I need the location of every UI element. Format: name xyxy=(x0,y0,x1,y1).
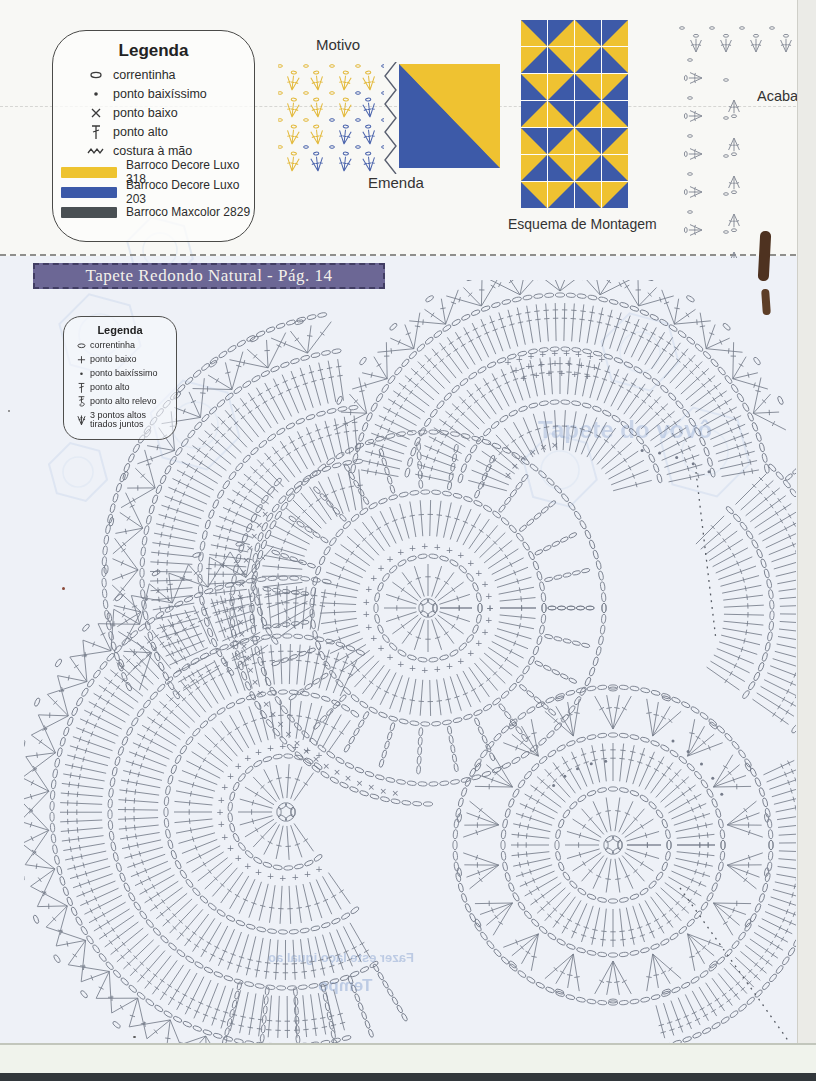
esquema-cell xyxy=(602,182,628,208)
esquema-cell xyxy=(548,74,574,100)
svg-text:+: + xyxy=(481,579,489,589)
esquema-cell xyxy=(548,128,574,154)
symbol-cell xyxy=(72,382,90,394)
symbol-cell xyxy=(79,86,113,102)
esquema-cell xyxy=(575,20,601,46)
legend-item-label: costura à mão xyxy=(113,144,192,158)
slip-stitch-icon xyxy=(87,86,105,102)
svg-text:×: × xyxy=(261,509,269,519)
svg-text:+: + xyxy=(525,361,533,371)
svg-text:+: + xyxy=(575,349,583,359)
esquema-cell xyxy=(575,155,601,181)
svg-text:+: + xyxy=(409,543,417,553)
legend-item: ponto alto relevo xyxy=(72,395,176,408)
legend-item-label: ponto alto relevo xyxy=(90,397,157,407)
yarn-swatch xyxy=(61,207,117,218)
dust-speck xyxy=(133,1036,136,1038)
svg-text:+: + xyxy=(421,541,429,551)
esquema-cell xyxy=(575,74,601,100)
svg-text:+: + xyxy=(216,807,224,817)
emenda-label: Emenda xyxy=(368,174,424,191)
rug-motif-bottom-right xyxy=(453,685,816,1049)
esquema-cell xyxy=(548,155,574,181)
symbol-cell xyxy=(72,340,90,352)
svg-text:+: + xyxy=(386,652,394,662)
svg-text:×: × xyxy=(379,786,387,796)
symbol-cell xyxy=(72,414,90,426)
legend-item-label: ponto baixo xyxy=(90,355,137,365)
esquema-cell xyxy=(548,20,574,46)
svg-text:+: + xyxy=(571,369,579,379)
svg-text:+: + xyxy=(475,638,483,648)
svg-text:+: + xyxy=(527,351,535,361)
svg-text:+: + xyxy=(227,843,235,853)
svg-text:×: × xyxy=(277,719,285,729)
esquema-cell xyxy=(602,101,628,127)
svg-text:×: × xyxy=(263,699,271,709)
svg-text:+: + xyxy=(386,554,394,564)
svg-text:+: + xyxy=(315,864,323,874)
esquema-cell xyxy=(575,128,601,154)
motivo-label: Motivo xyxy=(316,36,360,53)
esquema-cell xyxy=(575,47,601,73)
legend-item-label: correntinha xyxy=(113,68,176,82)
svg-text:+: + xyxy=(591,362,599,372)
yarn-label: Barroco Maxcolor 2829 xyxy=(126,205,250,219)
svg-text:+: + xyxy=(244,861,252,871)
legend-item-label: ponto baixíssimo xyxy=(113,87,207,101)
double-crochet-relief-icon xyxy=(75,396,88,408)
legend-item: 3 pontos altos tirados juntos xyxy=(72,409,176,431)
esquema-cell xyxy=(602,128,628,154)
legend-box-diagram: Legenda correntinhaponto baixoponto baix… xyxy=(63,316,177,440)
legend-item: ponto baixíssimo xyxy=(72,367,176,380)
rug-motif-bottom-left: +++++++++++++++++++++++ xyxy=(12,541,408,1071)
esquema-cell xyxy=(521,47,547,73)
symbol-cell xyxy=(79,124,113,140)
legend-item-label: ponto baixíssimo xyxy=(90,369,158,379)
symbol-cell xyxy=(72,368,90,380)
svg-text:+: + xyxy=(467,558,475,568)
symbol-cell xyxy=(72,354,90,366)
svg-text:+: + xyxy=(481,627,489,637)
svg-text:+: + xyxy=(397,659,405,669)
svg-text:+: + xyxy=(221,832,229,842)
svg-text:+: + xyxy=(520,373,528,383)
slip-stitch-icon xyxy=(75,368,88,380)
chain-icon xyxy=(87,67,105,83)
motivo-color-square xyxy=(399,64,500,168)
svg-text:+: + xyxy=(397,547,405,557)
svg-text:+: + xyxy=(292,872,300,882)
esquema-de-montagem-grid xyxy=(521,20,628,208)
legend-item: costura à mão xyxy=(79,143,254,159)
yarn-item: Barroco Decore Luxo 318 xyxy=(61,165,254,179)
svg-text:+: + xyxy=(434,664,442,674)
svg-text:+: + xyxy=(370,633,378,643)
svg-text:×: × xyxy=(344,773,352,783)
svg-text:+: + xyxy=(539,349,547,359)
svg-text:+: + xyxy=(545,368,553,378)
svg-text:+: + xyxy=(504,357,512,367)
symbol-cell xyxy=(79,67,113,83)
esquema-cell xyxy=(521,20,547,46)
legend-item-label: ponto alto xyxy=(113,125,168,139)
yarn-swatch xyxy=(61,167,117,178)
legend-symbol-list: correntinhaponto baixoponto baixíssimopo… xyxy=(64,339,176,431)
chain-icon xyxy=(75,340,88,352)
svg-text:+: + xyxy=(365,584,373,594)
banner-title: Tapete Redondo Natural - Pág. 14 xyxy=(85,266,332,286)
legend-item-label: ponto alto xyxy=(90,383,130,393)
svg-text:×: × xyxy=(333,767,341,777)
svg-text:+: + xyxy=(234,761,242,771)
svg-text:×: × xyxy=(285,729,293,739)
legend-item-label: ponto baixo xyxy=(113,106,178,120)
emenda-seam-zigzag xyxy=(381,62,401,174)
svg-text:+: + xyxy=(446,545,454,555)
svg-text:×: × xyxy=(551,440,559,450)
dust-speck xyxy=(8,410,10,412)
svg-text:×: × xyxy=(257,688,265,698)
svg-text:×: × xyxy=(367,782,375,792)
esquema-cell xyxy=(575,182,601,208)
svg-text:+: + xyxy=(512,365,520,375)
esquema-cell xyxy=(521,128,547,154)
single-crochet-x-icon xyxy=(87,105,105,121)
svg-text:+: + xyxy=(234,853,242,863)
legend-item-label: 3 pontos altos tirados juntos xyxy=(90,411,170,430)
svg-text:+: + xyxy=(485,591,493,601)
legend-item: ponto baixo xyxy=(72,353,176,366)
svg-text:+: + xyxy=(255,747,263,757)
svg-text:+: + xyxy=(446,661,454,671)
3dc-together-icon xyxy=(75,414,88,426)
scan-page-right-edge xyxy=(797,0,816,1081)
esquema-cell xyxy=(521,182,547,208)
scan-page-bottom-edge xyxy=(0,1045,816,1073)
legend-item: correntinha xyxy=(79,67,254,83)
esquema-cell xyxy=(521,74,547,100)
svg-text:×: × xyxy=(293,738,301,748)
hand-seam-dotted-line xyxy=(696,472,716,640)
acabamento-edging-chart xyxy=(668,8,816,258)
symbol-cell xyxy=(72,396,90,408)
yarn-item: Barroco Maxcolor 2829 xyxy=(61,205,254,219)
motivo-crochet-chart xyxy=(278,60,384,174)
svg-text:+: + xyxy=(221,782,229,792)
svg-text:+: + xyxy=(564,358,572,368)
svg-text:+: + xyxy=(377,563,385,573)
symbol-cell xyxy=(79,143,113,159)
esquema-cell xyxy=(548,101,574,127)
svg-text:+: + xyxy=(475,568,483,578)
svg-text:+: + xyxy=(244,753,252,763)
svg-text:+: + xyxy=(409,663,417,673)
yarn-swatch xyxy=(61,187,117,198)
esquema-cell xyxy=(602,74,628,100)
svg-text:×: × xyxy=(269,709,277,719)
svg-text:×: × xyxy=(238,579,246,589)
svg-text:+: + xyxy=(370,573,378,583)
legend-title: Legenda xyxy=(53,41,254,61)
esquema-cell xyxy=(602,155,628,181)
legend-item-label: correntinha xyxy=(90,341,135,351)
tape-stain-mark xyxy=(761,289,771,315)
svg-text:+: + xyxy=(538,359,546,369)
double-crochet-icon xyxy=(87,124,105,140)
legend-item: ponto baixo xyxy=(79,105,254,121)
legend-item: ponto baixíssimo xyxy=(79,86,254,102)
dust-speck xyxy=(62,587,65,590)
svg-text:+: + xyxy=(227,771,235,781)
svg-text:+: + xyxy=(421,665,429,675)
esquema-cell xyxy=(548,182,574,208)
single-crochet-plus-icon xyxy=(75,354,88,366)
legend-item: ponto alto xyxy=(79,124,254,140)
svg-text:+: + xyxy=(217,819,225,829)
symbol-cell xyxy=(79,105,113,121)
svg-text:+: + xyxy=(457,550,465,560)
svg-text:+: + xyxy=(304,869,312,879)
svg-text:+: + xyxy=(578,360,586,370)
svg-text:+: + xyxy=(486,603,494,613)
svg-text:×: × xyxy=(303,746,311,756)
legend-symbol-list: correntinhaponto baixíssimoponto baixopo… xyxy=(53,67,254,159)
svg-text:+: + xyxy=(363,597,371,607)
legend-box-top: Legenda correntinhaponto baixíssimoponto… xyxy=(52,30,255,242)
svg-text:+: + xyxy=(255,867,263,877)
legend-yarn-list: Barroco Decore Luxo 318Barroco Decore Lu… xyxy=(53,165,254,219)
scanner-background-strip xyxy=(0,1073,816,1081)
svg-text:×: × xyxy=(322,761,330,771)
svg-text:+: + xyxy=(587,351,595,361)
esquema-cell xyxy=(548,47,574,73)
svg-text:+: + xyxy=(551,358,559,368)
svg-text:+: + xyxy=(551,348,559,358)
esquema-label: Esquema de Montagem xyxy=(508,216,657,232)
svg-text:+: + xyxy=(532,370,540,380)
hand-seam-dotted-line xyxy=(680,888,792,1046)
acabamento-label: Acabam xyxy=(757,88,802,104)
esquema-cell xyxy=(575,101,601,127)
svg-text:×: × xyxy=(312,754,320,764)
svg-text:+: + xyxy=(365,622,373,632)
legend-title: Legenda xyxy=(64,324,176,336)
rug-motif-top: ××××××++++++++++++++++++++++ xyxy=(334,259,786,491)
page-banner: Tapete Redondo Natural - Pág. 14 xyxy=(33,263,385,289)
svg-text:+: + xyxy=(457,656,465,666)
svg-text:+: + xyxy=(267,871,275,881)
esquema-cell xyxy=(602,20,628,46)
svg-text:×: × xyxy=(392,788,400,798)
svg-text:×: × xyxy=(251,677,259,687)
esquema-cell xyxy=(521,155,547,181)
svg-text:×: × xyxy=(242,555,250,565)
svg-text:+: + xyxy=(363,609,371,619)
svg-text:+: + xyxy=(558,368,566,378)
double-crochet-icon xyxy=(75,382,88,394)
svg-text:+: + xyxy=(485,615,493,625)
svg-text:×: × xyxy=(247,665,255,675)
svg-text:×: × xyxy=(250,531,258,541)
svg-text:+: + xyxy=(434,542,442,552)
hand-seam-icon xyxy=(87,143,105,159)
esquema-cell xyxy=(521,101,547,127)
svg-text:×: × xyxy=(237,592,245,602)
legend-item: ponto alto xyxy=(72,381,176,394)
esquema-cell xyxy=(602,47,628,73)
svg-text:+: + xyxy=(563,348,571,358)
legend-item: correntinha xyxy=(72,339,176,352)
svg-text:×: × xyxy=(240,567,248,577)
svg-text:+: + xyxy=(267,743,275,753)
svg-text:+: + xyxy=(598,354,606,364)
yarn-item: Barroco Decore Luxo 203 xyxy=(61,185,254,199)
svg-text:+: + xyxy=(377,643,385,653)
svg-text:+: + xyxy=(217,795,225,805)
svg-text:+: + xyxy=(467,648,475,658)
yarn-label: Barroco Decore Luxo 203 xyxy=(126,178,254,206)
svg-text:+: + xyxy=(279,873,287,883)
svg-text:×: × xyxy=(356,778,364,788)
scanned-magazine-page: { "banner": { "title": "Tapete Redondo N… xyxy=(0,0,816,1081)
svg-text:+: + xyxy=(516,354,524,364)
svg-text:+: + xyxy=(584,371,592,381)
